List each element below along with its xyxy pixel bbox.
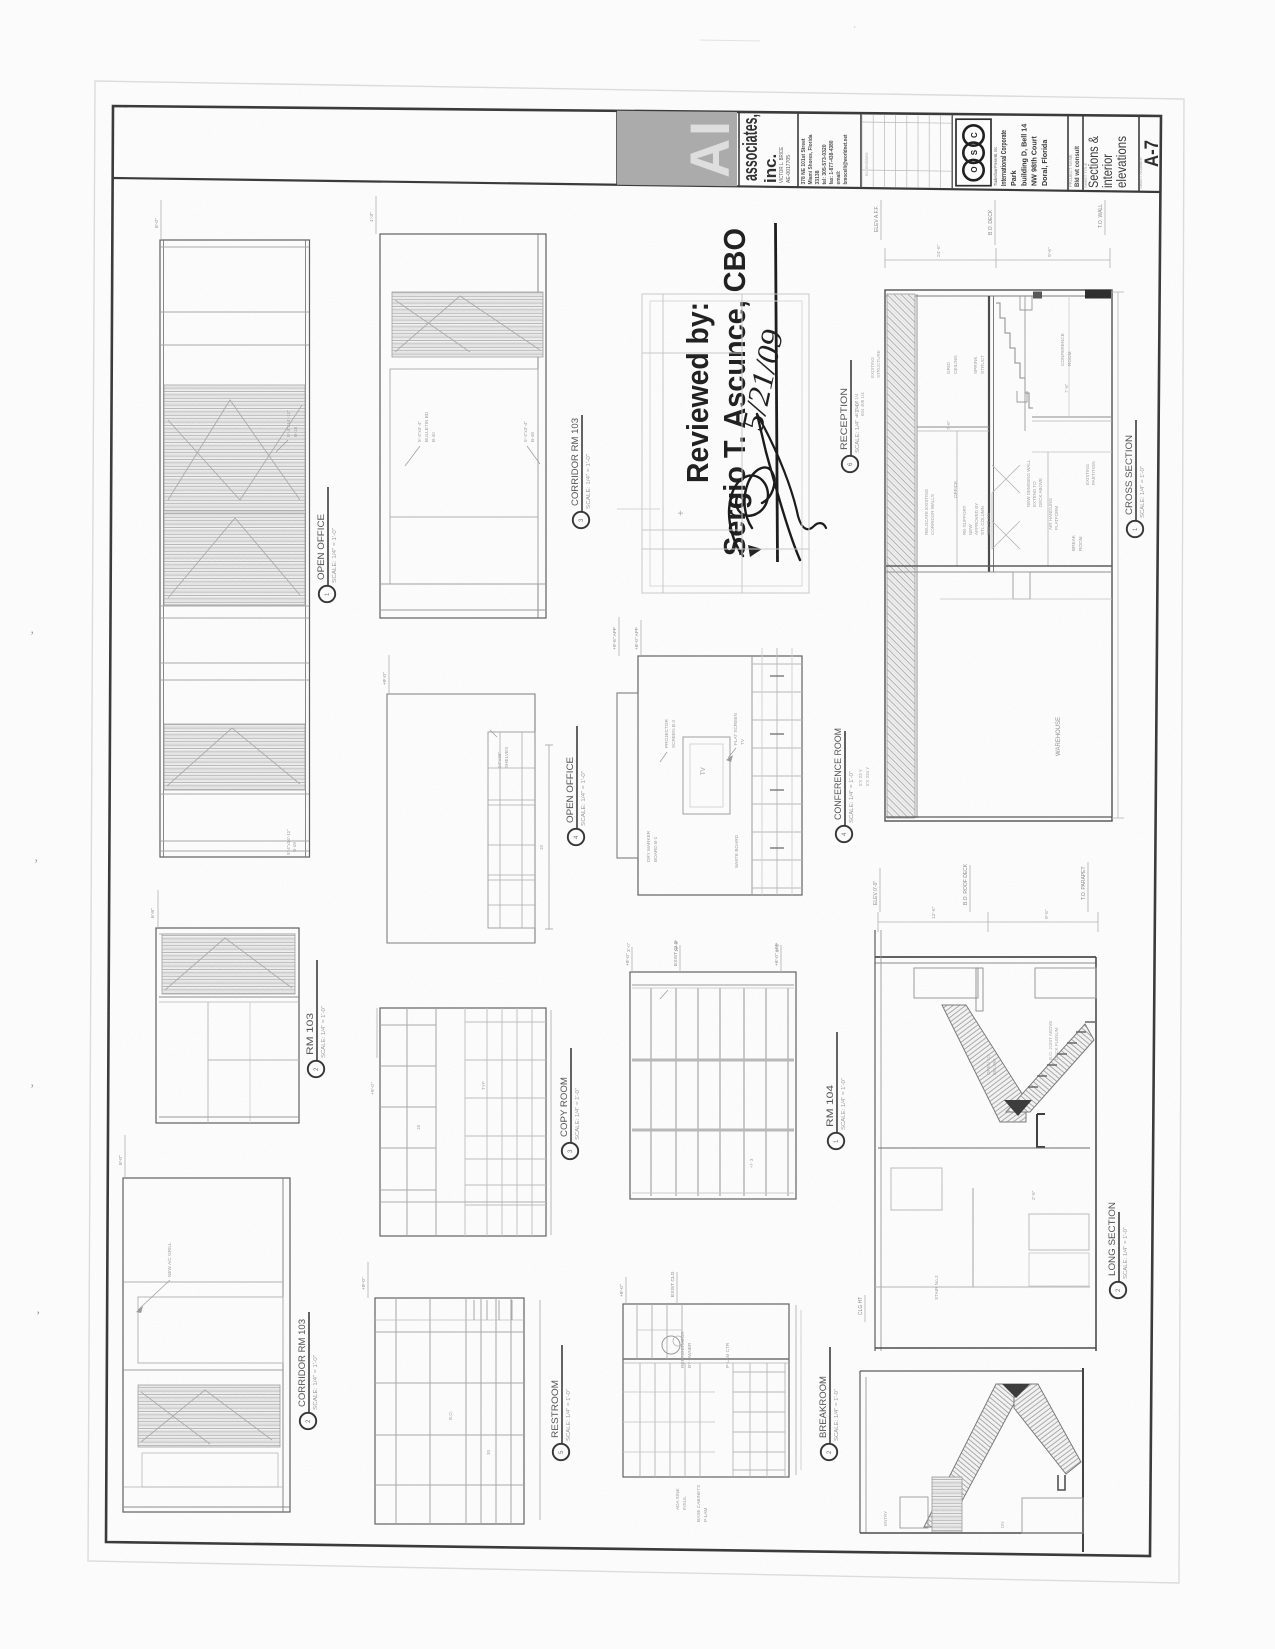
svg-text:’: ’ <box>30 1081 34 1096</box>
svg-text:’: ’ <box>36 1308 40 1323</box>
svg-text:’: ’ <box>30 628 34 643</box>
svg-text:`: ` <box>853 26 856 37</box>
svg-text:’: ’ <box>34 856 38 871</box>
